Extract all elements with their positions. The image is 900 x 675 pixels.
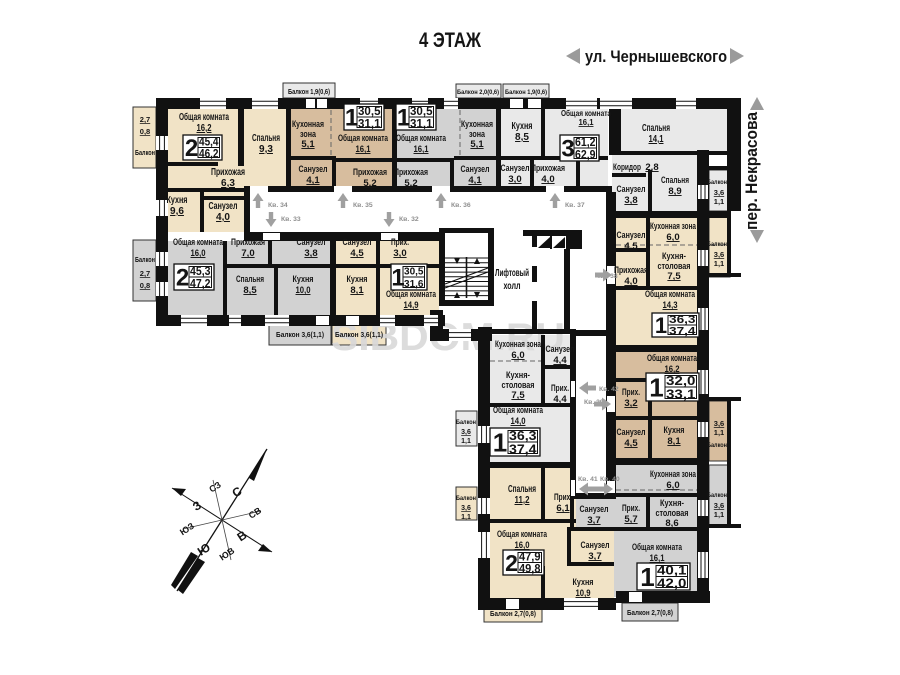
svg-text:Кухня: Кухня [347,274,368,285]
svg-text:Спальня: Спальня [252,133,280,144]
svg-text:Общая комната: Общая комната [632,542,682,553]
svg-text:1: 1 [397,105,410,132]
svg-text:7,5: 7,5 [511,390,525,401]
svg-text:45,4: 45,4 [199,137,219,149]
svg-text:Общая комната: Общая комната [173,237,223,248]
svg-text:32,0: 32,0 [666,374,696,388]
svg-text:Балкон 2,7(0,8): Балкон 2,7(0,8) [490,609,536,618]
svg-text:Кухня: Кухня [167,195,188,206]
svg-text:Прих.: Прих. [391,237,409,248]
svg-text:16,1: 16,1 [650,553,666,564]
svg-text:30,5: 30,5 [410,106,433,118]
svg-text:Коридор: Коридор [613,162,641,173]
svg-text:Прих.: Прих. [554,492,572,503]
svg-text:Спальня: Спальня [661,175,689,186]
svg-text:3: 3 [561,136,574,163]
svg-text:3,0: 3,0 [508,174,521,185]
svg-text:16,0: 16,0 [191,248,206,259]
svg-text:Санузел: Санузел [209,201,238,212]
svg-text:1,1: 1,1 [461,438,471,445]
svg-text:16,2: 16,2 [197,123,212,134]
svg-text:Санузел: Санузел [580,504,609,515]
svg-text:Общая комната: Общая комната [645,289,695,300]
svg-text:3,2: 3,2 [624,398,637,409]
svg-text:6,0: 6,0 [511,350,524,361]
svg-text:Санузел: Санузел [546,344,575,355]
svg-text:47,2: 47,2 [190,278,211,290]
svg-text:1: 1 [391,265,404,292]
svg-text:7,5: 7,5 [667,271,681,282]
svg-text:42,0: 42,0 [657,577,687,591]
svg-text:2: 2 [185,135,198,162]
svg-text:1,1: 1,1 [714,510,724,519]
svg-text:14,1: 14,1 [649,134,664,145]
svg-text:16,1: 16,1 [414,144,430,155]
svg-text:4,4: 4,4 [553,355,567,366]
svg-text:40,1: 40,1 [657,564,687,578]
svg-text:14,9: 14,9 [404,300,419,311]
svg-text:Балкон: Балкон [456,419,476,426]
svg-text:Общая комната: Общая комната [179,111,229,123]
svg-text:1: 1 [655,313,667,338]
svg-text:3,6: 3,6 [714,188,724,197]
svg-text:33,1: 33,1 [666,387,696,401]
svg-text:3,8: 3,8 [624,195,637,206]
svg-text:61,2: 61,2 [575,137,596,149]
svg-text:Прих.: Прих. [551,383,569,394]
svg-text:2: 2 [176,265,189,292]
svg-text:1,1: 1,1 [461,514,471,521]
svg-text:Санузел: Санузел [617,230,646,241]
svg-text:Кв. 42: Кв. 42 [599,386,619,393]
svg-text:Кухня: Кухня [512,121,533,132]
svg-text:1: 1 [640,562,654,592]
svg-text:Санузел: Санузел [299,164,328,175]
svg-text:Санузел: Санузел [617,427,646,438]
svg-text:Прихожая: Прихожая [614,265,648,276]
svg-text:Кв. 36: Кв. 36 [451,202,471,209]
svg-text:холл: холл [504,280,521,292]
svg-text:3,6: 3,6 [714,419,724,428]
svg-text:Кв. 37: Кв. 37 [565,202,585,209]
svg-text:Спальня: Спальня [236,274,264,285]
svg-text:0,8: 0,8 [140,281,150,290]
svg-text:45,3: 45,3 [190,266,211,278]
svg-text:Кв. 33: Кв. 33 [281,216,301,223]
svg-text:47,9: 47,9 [519,552,541,564]
svg-text:1: 1 [649,372,663,402]
svg-text:Кухонная зона: Кухонная зона [495,339,541,350]
svg-text:Балкон 1,9(0,6): Балкон 1,9(0,6) [288,89,330,96]
svg-text:4,5: 4,5 [624,438,638,449]
svg-text:Балкон: Балкон [135,150,155,157]
svg-text:36,3: 36,3 [669,314,696,326]
svg-text:Кв. 32: Кв. 32 [399,216,419,223]
svg-text:3,6: 3,6 [714,501,724,510]
svg-text:Балкон 3,6(1,1): Балкон 3,6(1,1) [276,330,324,339]
svg-text:6,1: 6,1 [556,503,570,514]
svg-text:Прихожая: Прихожая [231,237,265,248]
svg-text:Прих.: Прих. [622,503,640,514]
svg-text:6,0: 6,0 [666,232,679,243]
svg-text:31,1: 31,1 [410,118,433,130]
svg-text:Общая комната: Общая комната [338,133,388,144]
svg-text:11,2: 11,2 [515,495,530,506]
svg-text:Санузел: Санузел [343,237,372,248]
svg-text:Балкон 2,0(0,6): Балкон 2,0(0,6) [457,89,499,96]
svg-text:2,7: 2,7 [140,115,150,124]
svg-text:4,5: 4,5 [624,241,638,252]
svg-text:4,0: 4,0 [216,212,230,223]
svg-text:37,4: 37,4 [669,326,697,338]
svg-text:пер. Некрасова: пер. Некрасова [742,112,761,230]
svg-text:1: 1 [345,105,358,132]
svg-text:8,1: 8,1 [350,285,364,296]
svg-text:Кв. 34: Кв. 34 [268,202,288,209]
svg-text:1,1: 1,1 [714,197,724,206]
svg-text:16,1: 16,1 [579,117,594,127]
svg-text:Прихожая: Прихожая [394,167,428,178]
svg-text:2,7: 2,7 [140,269,150,278]
svg-text:6,3: 6,3 [221,178,235,189]
svg-text:3,6: 3,6 [461,429,471,436]
svg-text:1: 1 [493,427,507,457]
svg-text:14,3: 14,3 [663,300,678,311]
svg-text:Балкон: Балкон [707,442,727,449]
svg-text:Кв. 41: Кв. 41 [578,476,598,483]
svg-text:Общая комната: Общая комната [386,289,436,300]
svg-text:Балкон: Балкон [135,257,155,264]
svg-text:16,1: 16,1 [356,144,372,155]
svg-text:Кухня: Кухня [293,274,314,285]
svg-text:4,0: 4,0 [624,276,637,287]
svg-text:Санузел: Санузел [501,163,530,174]
svg-text:9,6: 9,6 [170,206,184,217]
svg-text:3,6: 3,6 [461,505,471,512]
svg-text:Прих.: Прих. [622,387,640,398]
svg-text:31,1: 31,1 [358,118,381,130]
svg-text:Прихожая: Прихожая [353,167,387,178]
svg-text:2: 2 [505,550,518,576]
svg-text:Балкон: Балкон [456,495,476,502]
svg-text:Общая комната: Общая комната [396,133,446,144]
svg-text:36,3: 36,3 [509,429,537,443]
svg-text:Спальня: Спальня [642,123,670,134]
svg-text:46,2: 46,2 [199,149,219,161]
svg-text:10,0: 10,0 [296,285,311,296]
svg-text:Лифтовый: Лифтовый [495,267,529,279]
svg-text:Балкон 3,6(1,1): Балкон 3,6(1,1) [335,330,383,339]
svg-text:Кухонная зона: Кухонная зона [650,469,696,480]
svg-text:1,1: 1,1 [714,428,724,437]
svg-text:2,8: 2,8 [645,162,658,173]
svg-text:49,8: 49,8 [519,564,541,576]
svg-text:Кухня: Кухня [573,577,594,588]
svg-text:8,5: 8,5 [243,285,257,296]
svg-text:5,7: 5,7 [624,514,637,525]
svg-text:3,7: 3,7 [587,515,600,526]
svg-text:Прихожая: Прихожая [211,167,245,178]
svg-text:8,5: 8,5 [515,132,529,143]
svg-text:4,4: 4,4 [553,394,567,405]
svg-text:8,9: 8,9 [668,186,681,197]
svg-text:3,6: 3,6 [714,250,724,259]
svg-text:6,0: 6,0 [666,480,679,491]
svg-text:4,0: 4,0 [541,174,554,185]
svg-text:Прихожая: Прихожая [531,163,565,174]
svg-text:10,9: 10,9 [576,588,591,599]
svg-text:4,1: 4,1 [306,175,320,186]
svg-text:Санузел: Санузел [461,164,490,175]
svg-text:7,0: 7,0 [241,248,254,259]
svg-text:30,5: 30,5 [358,106,381,118]
svg-text:5,1: 5,1 [470,139,484,150]
svg-text:9,3: 9,3 [259,144,273,155]
svg-text:Балкон: Балкон [707,241,727,248]
svg-text:Балкон 2,7(0,8): Балкон 2,7(0,8) [627,608,673,617]
svg-text:14,0: 14,0 [511,416,526,427]
svg-text:1,1: 1,1 [714,259,724,268]
svg-text:4,1: 4,1 [468,175,482,186]
svg-text:Спальня: Спальня [508,484,536,495]
svg-text:5,2: 5,2 [404,178,417,189]
svg-text:30,5: 30,5 [404,265,424,277]
svg-text:5,2: 5,2 [363,178,376,189]
svg-text:4,5: 4,5 [350,248,364,259]
svg-text:5,1: 5,1 [301,139,315,150]
svg-text:8,6: 8,6 [665,518,678,529]
svg-text:4 ЭТАЖ: 4 ЭТАЖ [419,29,482,52]
svg-text:62,9: 62,9 [575,149,596,161]
svg-text:3,0: 3,0 [393,248,406,259]
svg-text:16,2: 16,2 [665,364,680,375]
svg-text:8,1: 8,1 [667,436,681,447]
svg-text:ул. Чернышевского: ул. Чернышевского [585,47,727,66]
svg-text:16,0: 16,0 [515,540,530,551]
svg-text:Санузел: Санузел [581,540,610,551]
svg-text:Санузел: Санузел [297,237,326,248]
svg-text:Общая комната: Общая комната [493,405,543,416]
svg-text:Кухня: Кухня [664,425,685,436]
svg-text:Балкон: Балкон [707,492,727,499]
svg-text:0,8: 0,8 [140,127,150,136]
svg-text:Общая комната: Общая комната [647,353,697,364]
svg-text:Балкон: Балкон [707,179,727,186]
svg-text:3,7: 3,7 [588,551,601,562]
svg-text:Санузел: Санузел [617,184,646,195]
svg-text:Общая комната: Общая комната [497,529,547,540]
svg-text:Балкон 1,9(0,6): Балкон 1,9(0,6) [505,89,547,96]
svg-text:Кв. 40: Кв. 40 [600,476,620,483]
svg-text:Кв. 35: Кв. 35 [353,202,373,209]
svg-text:37,4: 37,4 [509,442,537,456]
svg-text:3,8: 3,8 [304,248,317,259]
svg-text:Кухонная зона: Кухонная зона [650,221,696,232]
